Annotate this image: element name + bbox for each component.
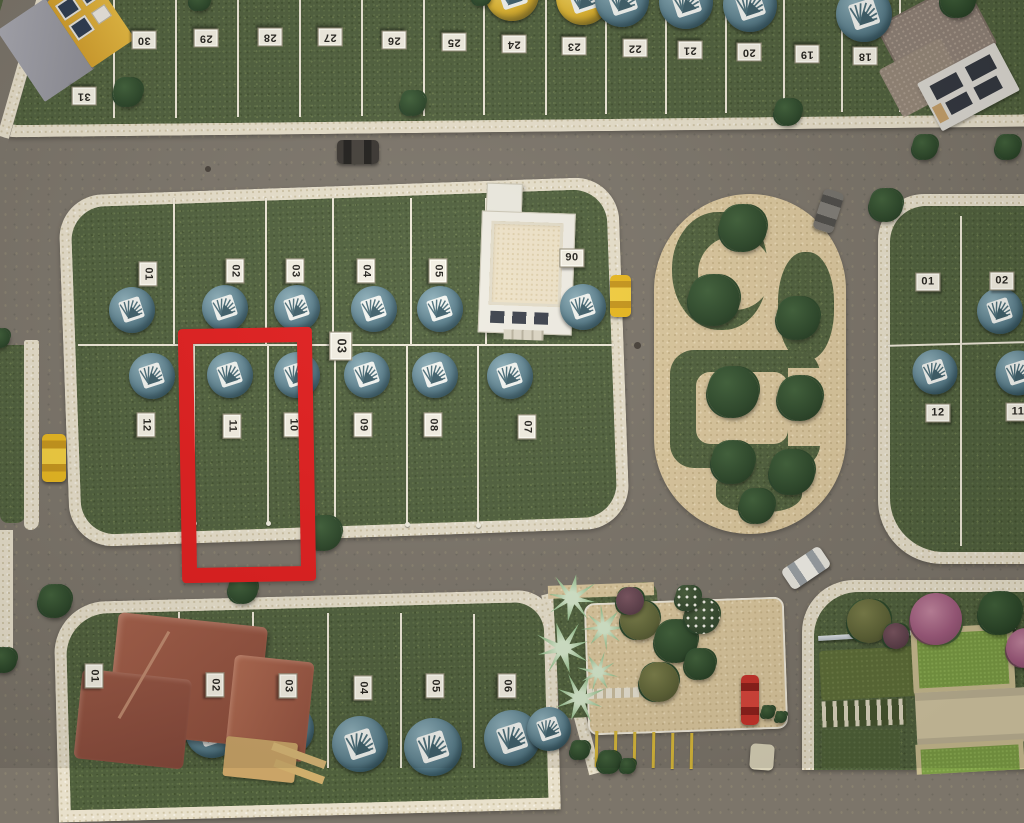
- flowering-tree: [910, 593, 962, 645]
- green-roof-building: [915, 739, 1024, 775]
- lot-number-plate: 28: [257, 28, 282, 47]
- plaza-tree: [639, 662, 679, 702]
- red-car: [741, 675, 759, 725]
- left-verge-curb: [24, 340, 39, 530]
- black-car: [337, 140, 379, 164]
- parking-line: [671, 733, 675, 769]
- left-verge-grass: [0, 345, 26, 523]
- lot-number-plate: 25: [441, 33, 466, 52]
- park-tree: [707, 366, 759, 418]
- lot-number-plate: 18: [852, 47, 877, 66]
- lot-divider: [477, 346, 479, 524]
- lot-number-plate: 01: [915, 273, 940, 292]
- tree: [978, 591, 1022, 635]
- lot-dome-marker: [487, 353, 533, 399]
- lot-number-plate: 23: [561, 37, 586, 56]
- yellow-car: [42, 434, 66, 482]
- lot-number-plate: 24: [501, 35, 526, 54]
- park-tree: [711, 440, 755, 484]
- parking-line: [652, 732, 656, 768]
- lot-divider: [361, 0, 363, 116]
- hedge-stripes: [822, 699, 907, 728]
- lot-number-plate: 08: [424, 412, 443, 437]
- lot-divider: [400, 613, 402, 768]
- lot-dome-marker: [274, 285, 320, 331]
- park-tree: [777, 375, 823, 421]
- plaza-tree: [684, 648, 716, 680]
- lot-divider: [334, 346, 336, 524]
- lot-dome-marker: [417, 286, 463, 332]
- lot-dome-marker: [202, 285, 248, 331]
- lot-dome-marker: [412, 352, 458, 398]
- lot-number-plate: 06: [498, 673, 517, 698]
- lot-divider: [237, 0, 239, 117]
- bush: [775, 711, 787, 723]
- lot-number-plate: 01: [85, 663, 104, 688]
- lot-divider: [960, 216, 962, 546]
- tree: [912, 134, 938, 160]
- lot-number-plate: 12: [137, 412, 156, 437]
- lot-number-plate: 01: [139, 261, 158, 286]
- park-tree: [769, 449, 815, 495]
- lot-number-plate: 90: [559, 249, 584, 268]
- green-roof: [921, 744, 1020, 774]
- tree: [995, 134, 1021, 160]
- brown-house-porch: [222, 736, 298, 783]
- lot-dome-marker: [913, 350, 958, 395]
- bush: [620, 758, 636, 774]
- lot-divider: [299, 0, 301, 117]
- lot-number-plate: 02: [989, 272, 1014, 291]
- road-spot: [205, 166, 211, 172]
- lot-number-plate: 21: [677, 41, 702, 60]
- lot-number-plate: 03: [286, 258, 305, 283]
- lot-divider: [473, 614, 475, 768]
- lot-number-plate: 20: [736, 43, 761, 62]
- lot-dome-marker: [109, 287, 155, 333]
- lot-number-plate: 03: [279, 673, 298, 698]
- gray-car: [812, 188, 845, 234]
- left-curb-strip: [0, 530, 13, 652]
- office-roof-deck: [489, 221, 564, 307]
- bush: [597, 750, 621, 774]
- lot-dome-marker: [527, 707, 571, 751]
- lot-number-plate: 31: [71, 87, 96, 106]
- lot-divider: [332, 198, 334, 344]
- office-windows: [490, 311, 554, 325]
- road-spot: [634, 342, 641, 349]
- lot-dome-marker: [560, 284, 606, 330]
- bush: [570, 740, 590, 760]
- lot-dome-marker: [129, 353, 175, 399]
- park-tree: [688, 274, 740, 326]
- lot-number-plate: 02: [226, 258, 245, 283]
- lot-divider: [410, 198, 412, 344]
- lawn: [822, 730, 900, 768]
- lot-number-plate: 19: [794, 45, 819, 64]
- parked-car: [749, 743, 775, 771]
- lot-number-plate: 29: [193, 29, 218, 48]
- lot-number-plate: 30: [131, 31, 156, 50]
- lot-divider: [265, 198, 267, 344]
- lot-number-plate: 07: [518, 414, 537, 439]
- brown-house: [72, 609, 347, 795]
- lot-divider: [406, 346, 408, 524]
- tree: [869, 188, 903, 222]
- lot-number-plate: 04: [357, 258, 376, 283]
- bush: [761, 705, 775, 719]
- lot-number-plate: 04: [354, 675, 373, 700]
- bush: [38, 584, 72, 618]
- plaza-tree: [616, 587, 644, 615]
- yellow-car: [610, 275, 631, 317]
- string-peg: [405, 522, 410, 527]
- lot-divider: [175, 0, 177, 118]
- lot-number-plate: 05: [426, 673, 445, 698]
- lot-number-plate: 22: [622, 39, 647, 58]
- lot-number-plate: 26: [381, 31, 406, 50]
- block-number-plate: 03: [330, 332, 353, 361]
- lot-number-plate: 02: [206, 672, 225, 697]
- park-tree: [776, 296, 820, 340]
- lot-number-plate: 11: [1006, 403, 1024, 422]
- lot-number-plate: 05: [429, 258, 448, 283]
- lot-divider: [483, 0, 485, 115]
- tree: [400, 90, 426, 116]
- park-tree: [739, 488, 775, 524]
- lot-dome-marker: [351, 286, 397, 332]
- lot-divider: [545, 0, 547, 115]
- lot-number-plate: 12: [925, 404, 950, 423]
- park-tree: [719, 204, 767, 252]
- lot-number-plate: 27: [317, 28, 342, 47]
- scale-model-photo: { "topStrip": { "lots": ["31","30","29",…: [0, 0, 1024, 768]
- tree: [774, 98, 802, 126]
- lot-divider: [783, 0, 785, 113]
- lot-dome-marker: [977, 288, 1023, 334]
- building-walkway: [915, 687, 1024, 747]
- highlight-rectangle: [178, 327, 316, 583]
- string-peg: [476, 523, 481, 528]
- tree: [883, 623, 909, 649]
- bush: [0, 647, 17, 673]
- plaza-tree-flowering: [675, 585, 701, 611]
- lot-dome-marker: [404, 718, 462, 776]
- lot-number-plate: 09: [354, 412, 373, 437]
- tree: [113, 77, 143, 107]
- lot-dome-marker: [332, 716, 388, 772]
- white-car: [780, 545, 832, 591]
- parking-line: [690, 733, 694, 769]
- lot-divider: [173, 198, 175, 344]
- office-steps: [503, 329, 543, 340]
